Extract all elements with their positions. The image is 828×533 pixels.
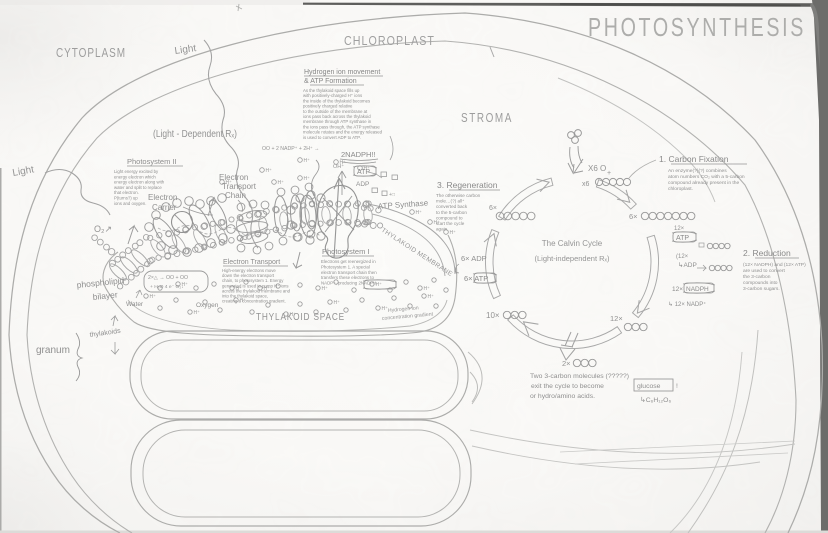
svg-text:x6: x6 (582, 181, 590, 188)
svg-text:6×: 6× (629, 212, 638, 221)
svg-text:H⁺: H⁺ (416, 210, 423, 216)
svg-text:Electrons get reenergized in: Electrons get reenergized in (321, 259, 376, 264)
svg-text:X6 O: X6 O (588, 164, 606, 173)
svg-text:Transport: Transport (222, 182, 257, 191)
svg-text:ions and oxygen.: ions and oxygen. (114, 201, 147, 206)
svg-text:energy electron along with: energy electron along with (114, 180, 165, 185)
svg-text:H⁺: H⁺ (450, 230, 457, 236)
svg-text:+: + (607, 170, 611, 177)
svg-text:6× ATP: 6× ATP (464, 274, 488, 283)
svg-text:H⁺: H⁺ (194, 310, 201, 316)
svg-text:Two 3-carbon molecules (?????): Two 3-carbon molecules (?????) (530, 373, 629, 380)
svg-text:+ H₂O 4 e⁻ O₂↓: + H₂O 4 e⁻ O₂↓ (150, 284, 184, 290)
svg-text:Hydrogen ion movement: Hydrogen ion movement (304, 69, 380, 76)
svg-text:or hydro/amino acids.: or hydro/amino acids. (530, 393, 595, 400)
svg-text:Chain: Chain (225, 191, 246, 200)
svg-text:THYLAKOID SPACE: THYLAKOID SPACE (256, 312, 345, 323)
svg-text:3-carbon sugars.: 3-carbon sugars. (743, 286, 780, 292)
svg-text:granum: granum (36, 345, 70, 356)
svg-text:& ATP Formation: & ATP Formation (304, 78, 357, 85)
svg-text:↳ 12× NADP⁺: ↳ 12× NADP⁺ (668, 301, 706, 308)
svg-text:3. Regeneration: 3. Regeneration (437, 180, 498, 190)
svg-text:Photosystem 1. A special: Photosystem 1. A special (321, 264, 370, 269)
svg-text:CYTOPLASM: CYTOPLASM (56, 46, 126, 60)
svg-text:Light energy excited by: Light energy excited by (114, 169, 159, 174)
svg-text:OO + 2 NADP⁺ + 2H⁺ →: OO + 2 NADP⁺ + 2H⁺ → (262, 146, 319, 152)
svg-text:1. Carbon Fixation: 1. Carbon Fixation (659, 154, 729, 164)
svg-text:Electron: Electron (148, 193, 177, 202)
svg-text:(12× NADPH) and (12× ATP): (12× NADPH) and (12× ATP) (743, 262, 806, 268)
svg-text:Photosystem II: Photosystem II (127, 157, 177, 166)
svg-text:mole…(?) all⁺: mole…(?) all⁺ (436, 199, 465, 204)
svg-text:+□: +□ (389, 192, 395, 198)
svg-text:H⁺: H⁺ (150, 294, 157, 300)
svg-text:(Light - Dependent Rₓ): (Light - Dependent Rₓ) (153, 129, 237, 140)
svg-text:2. Reduction: 2. Reduction (743, 248, 791, 258)
svg-text:The otherwise carbon: The otherwise carbon (436, 193, 481, 198)
svg-text:An enzyme(?)(?) combines: An enzyme(?)(?) combines (668, 168, 727, 174)
svg-text:H⁺: H⁺ (304, 176, 311, 182)
svg-text:12×: 12× (610, 314, 623, 323)
svg-text:are used to convert: are used to convert (743, 268, 786, 274)
svg-text:H⁺: H⁺ (304, 158, 311, 164)
svg-text:12×: 12× (672, 286, 683, 293)
svg-text:Carrier: Carrier (152, 203, 177, 212)
svg-text:2×△ → OO + OO: 2×△ → OO + OO (148, 275, 188, 281)
svg-text:10×: 10× (486, 311, 500, 320)
svg-text:H⁺: H⁺ (428, 294, 435, 300)
svg-text:chloroplast.: chloroplast. (668, 186, 693, 192)
svg-text:ATP: ATP (357, 169, 370, 176)
svg-text:OH⁺: OH⁺ (333, 163, 344, 170)
svg-text:converted back: converted back (436, 204, 468, 209)
svg-text:exit the cycle to become: exit the cycle to become (531, 383, 604, 390)
svg-text:O₂↗: O₂↗ (94, 224, 112, 234)
svg-text:ATP: ATP (676, 235, 689, 242)
svg-text:P(turns?) up: P(turns?) up (114, 196, 138, 201)
svg-text:Photosystem I: Photosystem I (322, 247, 370, 256)
svg-text:compounds into: compounds into (743, 280, 778, 286)
svg-text:the 3-carbon: the 3-carbon (743, 274, 771, 280)
svg-text:6× ADP: 6× ADP (461, 254, 487, 263)
svg-text:Oxygen: Oxygen (196, 302, 219, 309)
svg-text:Electron Transport: Electron Transport (223, 259, 280, 266)
svg-text:6×: 6× (489, 205, 497, 212)
svg-text:that electron.: that electron. (114, 190, 139, 195)
svg-text:!: ! (676, 383, 678, 390)
svg-text:CHLOROPLAST: CHLOROPLAST (344, 34, 435, 48)
svg-text:↳C₆H₁₂O₆: ↳C₆H₁₂O₆ (640, 396, 671, 404)
svg-text:12×: 12× (674, 226, 685, 232)
svg-text:2NADPH!!: 2NADPH!! (341, 150, 376, 159)
svg-text:energy electron which: energy electron which (114, 174, 156, 179)
svg-text:to the 5-carbon: to the 5-carbon (436, 210, 467, 215)
svg-text:PHOTOSYNTHESIS: PHOTOSYNTHESIS (588, 12, 806, 42)
svg-text:compound already present in th: compound already present in the (668, 180, 740, 186)
svg-text:atom numbers CO₂ with a 5-carb: atom numbers CO₂ with a 5-carbon (668, 174, 745, 180)
svg-text:start the cycle: start the cycle (436, 221, 465, 226)
svg-text:transfers these electrons to: transfers these electrons to (321, 275, 375, 280)
svg-text:NADPH: NADPH (686, 286, 709, 293)
svg-text:Electron: Electron (219, 173, 248, 182)
svg-text:H⁺: H⁺ (322, 286, 329, 292)
svg-text:H⁺: H⁺ (266, 168, 273, 174)
svg-text:is used to convert ADP to ATP.: is used to convert ADP to ATP. (303, 135, 361, 140)
svg-text:2×: 2× (562, 359, 571, 368)
svg-text:(Light-independent Rₓ): (Light-independent Rₓ) (534, 254, 610, 263)
svg-text:NADP⁺, producing 2NADPH.: NADP⁺, producing 2NADPH. (321, 281, 378, 286)
svg-text:Water: Water (126, 301, 144, 308)
svg-text:ADP: ADP (356, 181, 369, 188)
svg-text:water and split to replace: water and split to replace (114, 185, 162, 190)
svg-text:H⁺: H⁺ (424, 286, 431, 292)
svg-text:H⁺: H⁺ (278, 180, 285, 186)
svg-text:STROMA: STROMA (461, 111, 513, 125)
svg-text:again.: again. (436, 227, 449, 232)
svg-text:↳ADP: ↳ADP (678, 261, 697, 269)
svg-text:electron transport chain then: electron transport chain then (321, 270, 377, 275)
svg-text:creating a concentration gradi: creating a concentration gradient. (222, 299, 286, 304)
svg-text:compound to: compound to (436, 215, 463, 220)
svg-text:(12×: (12× (676, 254, 689, 260)
svg-text:The Calvin Cycle: The Calvin Cycle (542, 239, 603, 248)
svg-text:glucose: glucose (637, 383, 661, 390)
svg-text:H⁺: H⁺ (334, 300, 341, 306)
